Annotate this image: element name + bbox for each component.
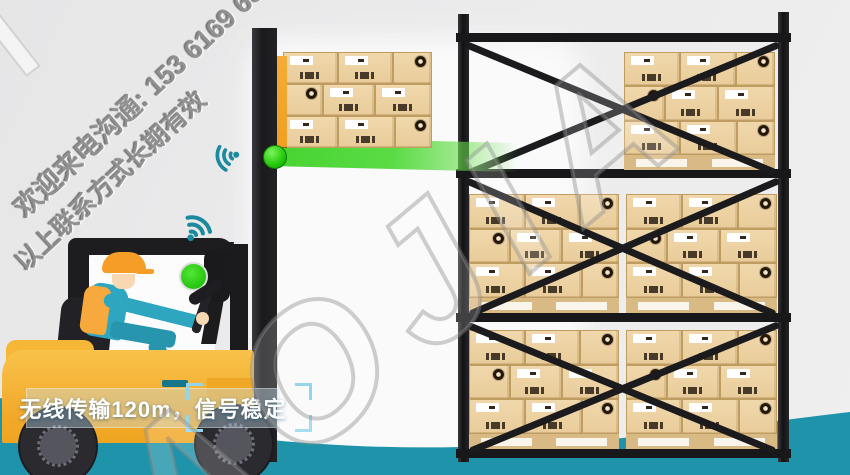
rack-post-right	[778, 12, 789, 462]
forklift	[2, 228, 260, 475]
box-row	[283, 84, 432, 116]
cardboard-box	[283, 84, 323, 116]
box-label	[345, 56, 368, 65]
box-label	[290, 120, 313, 129]
shipping-marks	[300, 136, 326, 143]
box-label	[382, 88, 405, 97]
carried-box-stack	[283, 52, 432, 148]
rack-bay-middle	[468, 178, 777, 312]
shipping-marks	[355, 72, 381, 79]
cardboard-box	[283, 52, 338, 84]
mast-rail	[277, 56, 287, 148]
box-label	[330, 88, 353, 97]
cardboard-box	[323, 84, 375, 116]
rack-beam	[456, 449, 791, 458]
shipping-marks	[300, 72, 326, 79]
rack-beam	[456, 33, 791, 42]
safety-helmet	[102, 252, 146, 273]
bracket-corner	[295, 383, 312, 400]
rack-bay-bottom	[468, 322, 777, 449]
recycle-mark-icon	[415, 120, 426, 131]
bracket-corner	[186, 383, 203, 400]
recycle-mark-icon	[415, 56, 426, 67]
box-row	[283, 116, 432, 148]
bracket-corner	[186, 415, 203, 432]
shipping-marks	[356, 136, 382, 143]
selection-bracket	[186, 383, 312, 432]
cardboard-box	[338, 52, 393, 84]
cardboard-box	[283, 116, 338, 148]
cardboard-box	[338, 116, 395, 148]
driver-hand	[196, 312, 209, 325]
animation-frame: 无线传输120m，信号稳定 欢迎来电沟通: 153 6169 6512 以上联系…	[0, 0, 850, 475]
body-stripe	[162, 380, 188, 387]
wifi-signal-icon	[200, 134, 249, 183]
cardboard-box	[395, 116, 432, 148]
bracket-corner	[295, 415, 312, 432]
box-label	[290, 56, 313, 65]
shipping-marks	[339, 104, 365, 111]
box-label	[345, 120, 368, 129]
rack-beam	[456, 313, 791, 322]
box-row	[283, 52, 432, 84]
green-sensor-ball	[263, 145, 287, 169]
cardboard-box	[393, 52, 432, 84]
recycle-mark-icon	[306, 88, 317, 99]
shipping-marks	[393, 104, 419, 111]
cardboard-box	[375, 84, 432, 116]
watermark-fragment	[0, 3, 41, 77]
box-stack	[283, 52, 432, 148]
